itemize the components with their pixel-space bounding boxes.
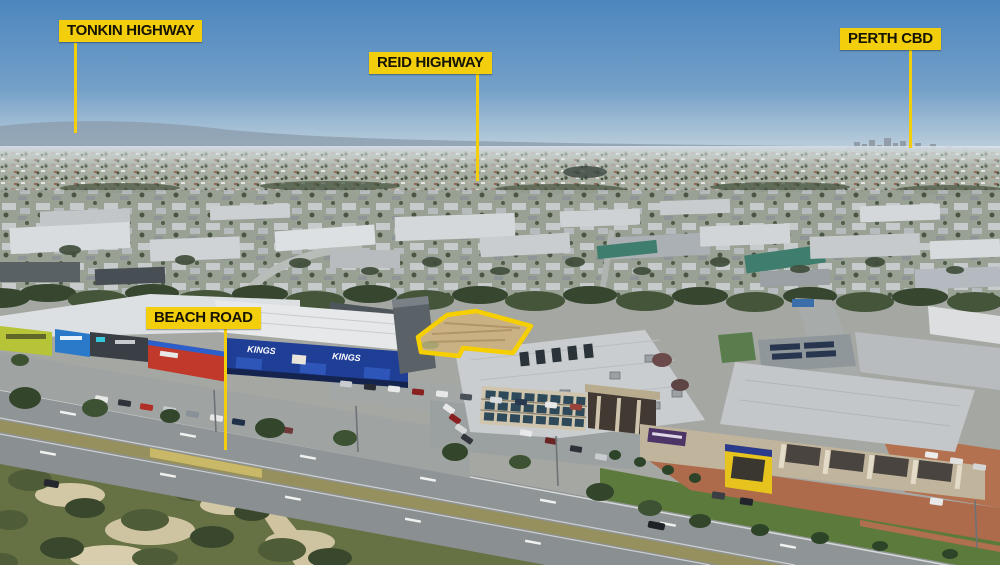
reid-highway-label: REID HIGHWAY xyxy=(369,52,492,74)
perth-cbd-label: PERTH CBD xyxy=(840,28,941,50)
reid-highway-leader-line xyxy=(476,74,479,181)
aerial-scene: KINGS KINGS xyxy=(0,0,1000,565)
aerial-photo: KINGS KINGS xyxy=(0,0,1000,565)
beach-road-leader-line xyxy=(224,327,227,450)
beach-road-label: BEACH ROAD xyxy=(146,307,261,329)
tonkin-highway-leader-line xyxy=(74,43,77,133)
distant-suburbs xyxy=(0,146,1000,195)
perth-cbd-leader-line xyxy=(909,49,912,148)
tonkin-highway-label: TONKIN HIGHWAY xyxy=(59,20,202,42)
